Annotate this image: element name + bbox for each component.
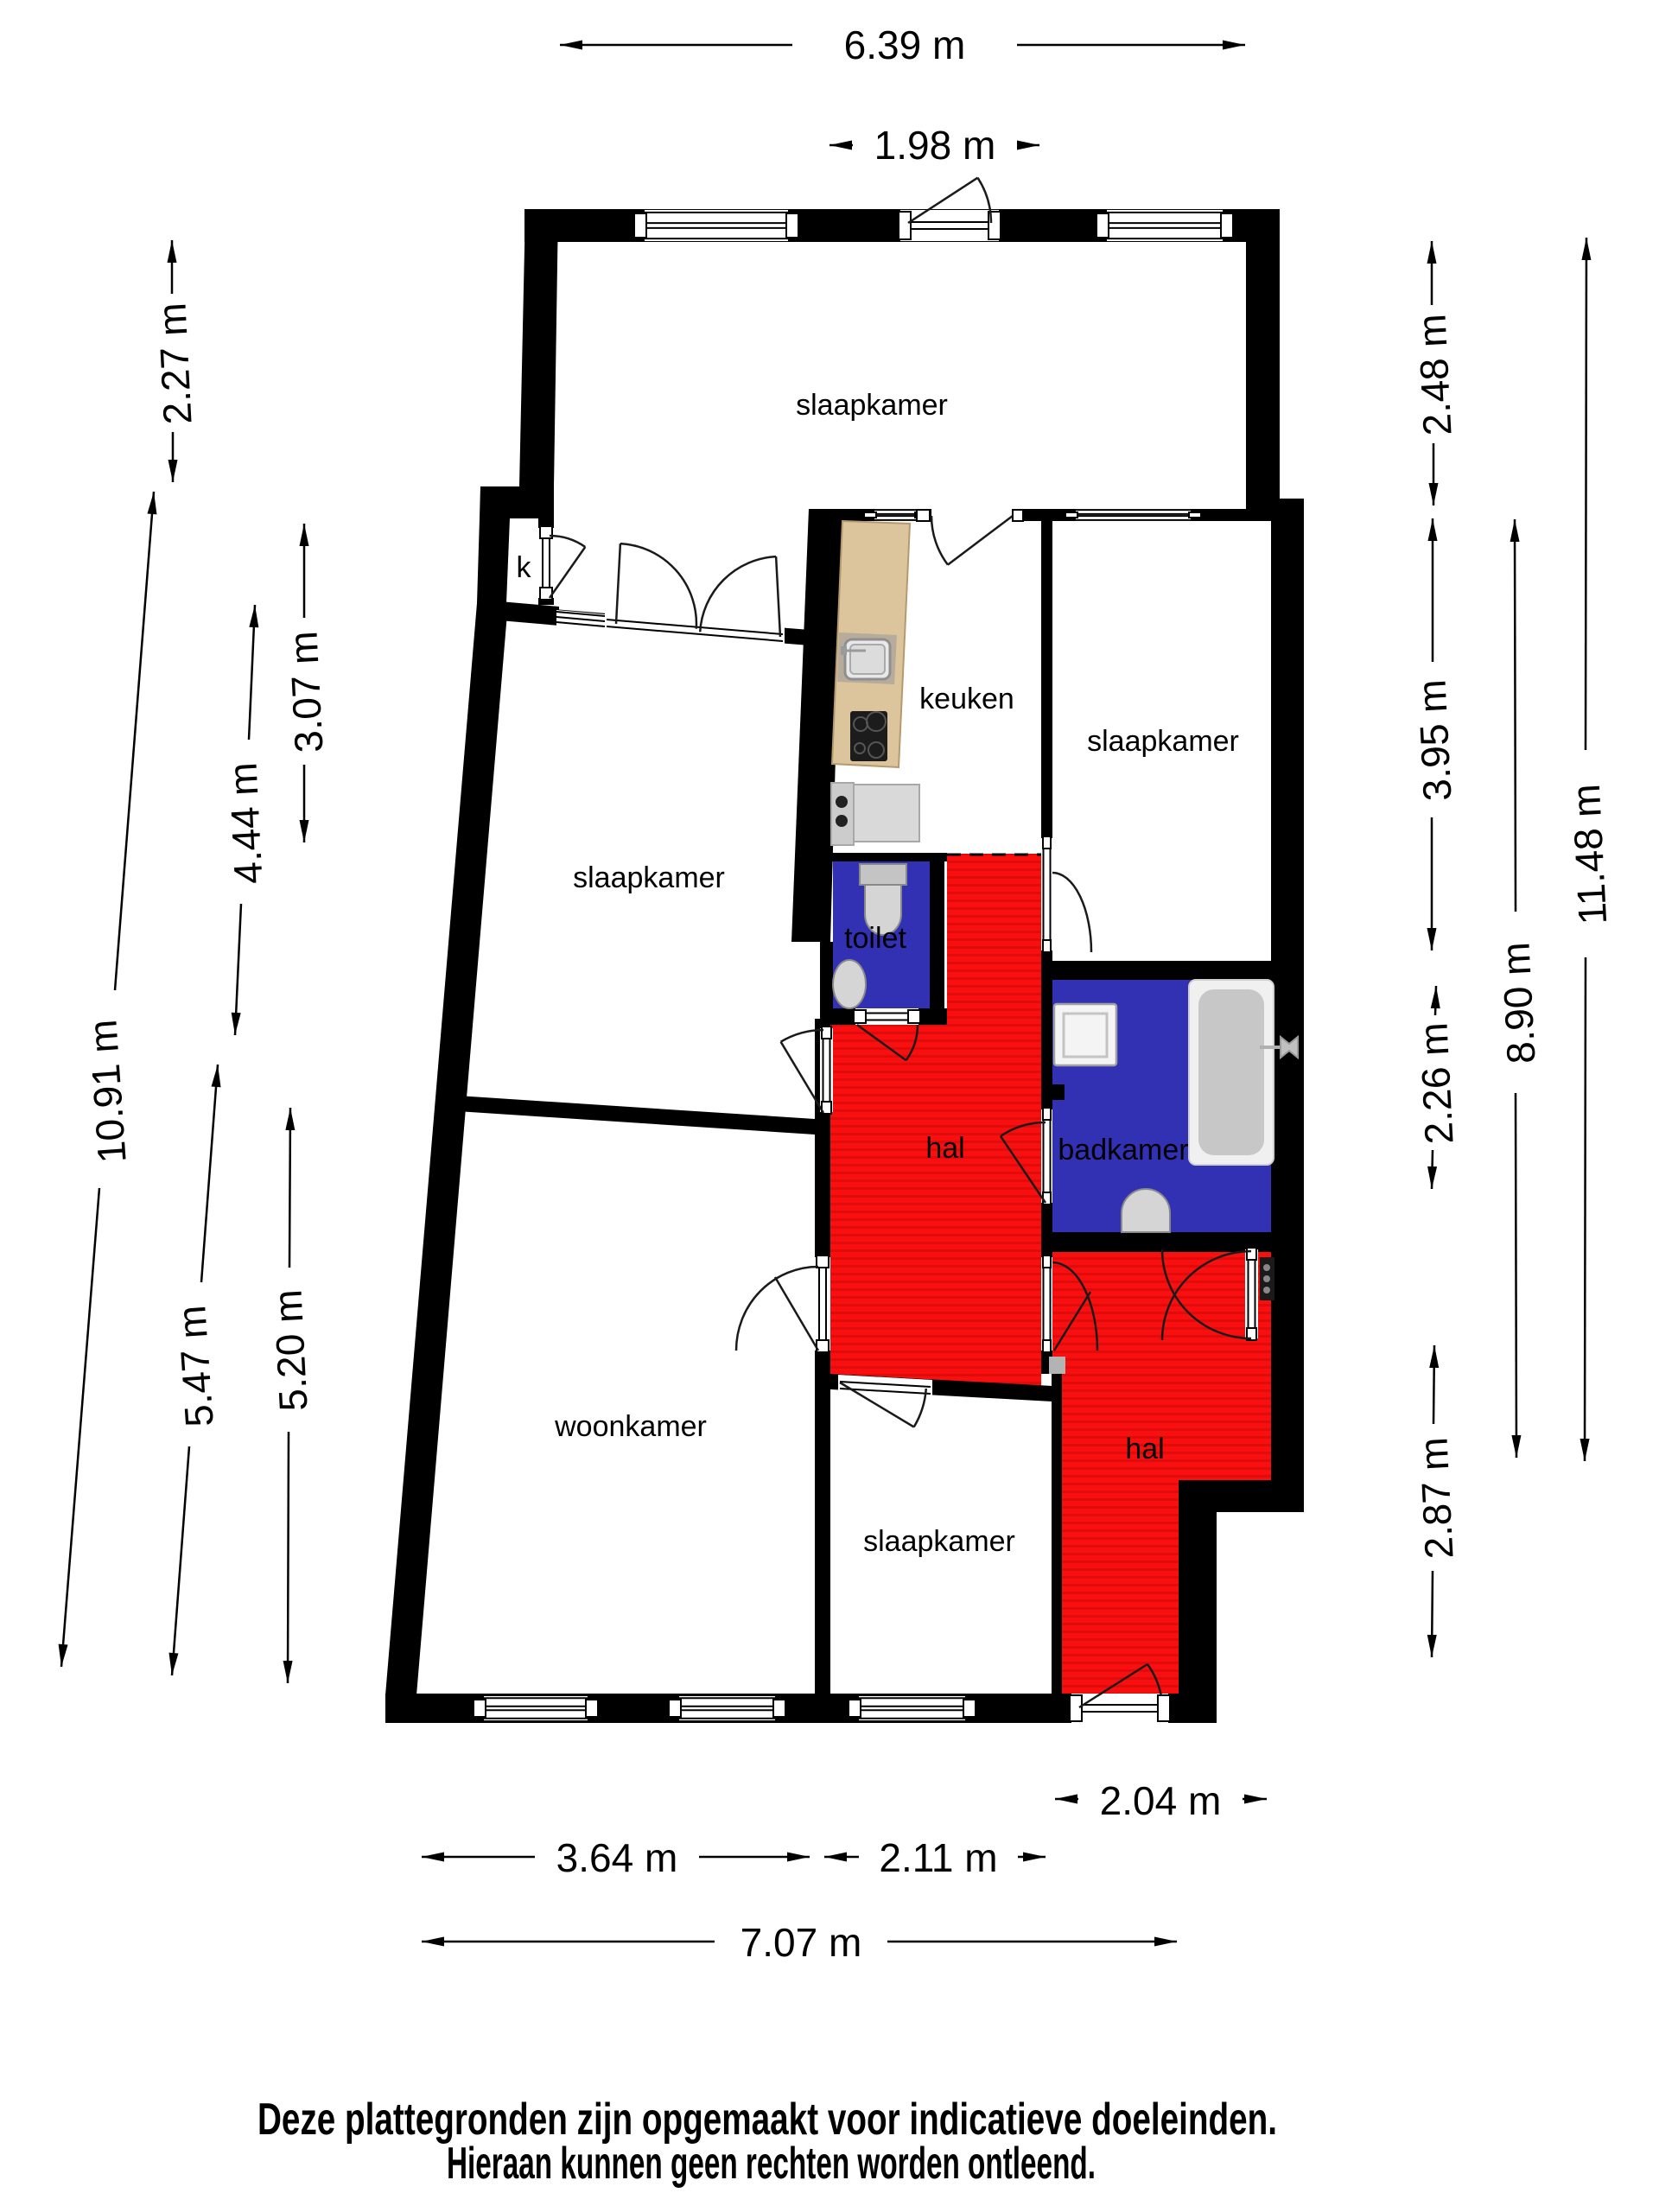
svg-text:slaapkamer: slaapkamer: [796, 389, 948, 422]
svg-text:slaapkamer: slaapkamer: [863, 1525, 1015, 1558]
svg-text:woonkamer: woonkamer: [554, 1410, 707, 1443]
svg-text:2.04 m: 2.04 m: [1100, 1778, 1222, 1823]
svg-text:hal: hal: [1125, 1433, 1164, 1465]
svg-text:Deze plattegronden zijn opgema: Deze plattegronden zijn opgemaakt voor i…: [257, 2094, 1277, 2145]
svg-text:5.47 m: 5.47 m: [168, 1304, 222, 1428]
svg-text:5.20 m: 5.20 m: [264, 1288, 315, 1412]
svg-text:slaapkamer: slaapkamer: [573, 861, 725, 894]
svg-text:3.07 m: 3.07 m: [280, 630, 331, 753]
svg-text:2.26 m: 2.26 m: [1410, 1021, 1461, 1145]
svg-text:2.27 m: 2.27 m: [149, 302, 200, 425]
svg-text:2.48 m: 2.48 m: [1408, 313, 1459, 436]
svg-text:2.87 m: 2.87 m: [1410, 1436, 1461, 1560]
svg-text:toilet: toilet: [844, 922, 906, 955]
svg-text:6.39 m: 6.39 m: [844, 22, 966, 67]
svg-text:7.07 m: 7.07 m: [741, 1920, 862, 1965]
svg-text:hal: hal: [925, 1132, 964, 1165]
svg-text:slaapkamer: slaapkamer: [1087, 725, 1239, 758]
svg-text:badkamer: badkamer: [1058, 1134, 1188, 1166]
svg-text:k: k: [517, 551, 532, 584]
svg-text:Hieraan kunnen geen rechten wo: Hieraan kunnen geen rechten worden ontle…: [447, 2139, 1096, 2189]
svg-text:3.95 m: 3.95 m: [1408, 678, 1459, 802]
svg-text:3.64 m: 3.64 m: [556, 1835, 678, 1880]
svg-text:4.44 m: 4.44 m: [219, 761, 270, 885]
svg-text:8.90 m: 8.90 m: [1492, 941, 1543, 1065]
svg-text:11.48 m: 11.48 m: [1563, 783, 1615, 925]
svg-text:2.11 m: 2.11 m: [879, 1835, 997, 1880]
svg-text:keuken: keuken: [919, 683, 1014, 715]
svg-text:1.98 m: 1.98 m: [874, 123, 996, 168]
